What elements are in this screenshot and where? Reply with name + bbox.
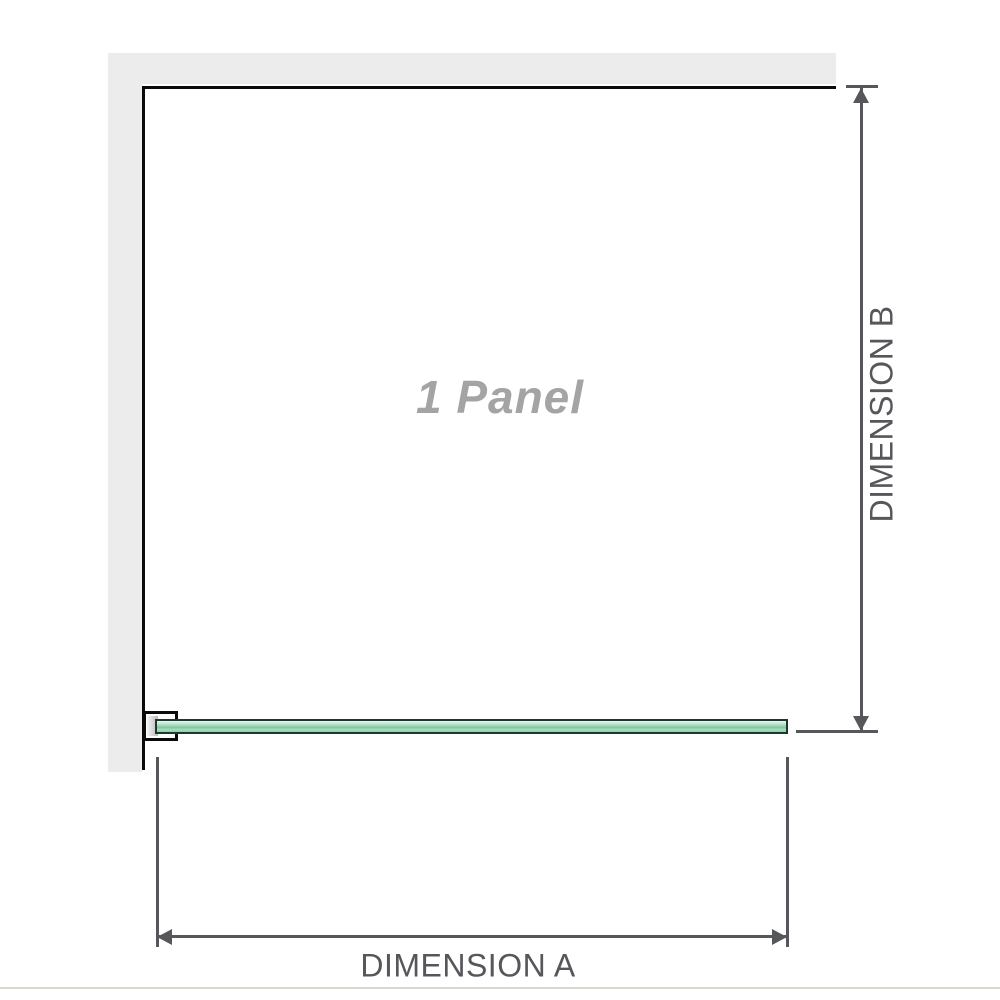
dimension-a-label: DIMENSION A <box>360 948 575 985</box>
dimension-a-arrow-right-icon <box>772 929 787 945</box>
dimension-b-cap-bottom <box>796 730 878 733</box>
diagram-canvas: 1 Panel DIMENSION B DIMENSION A <box>0 0 1000 1000</box>
panel-outline <box>142 86 836 770</box>
glass-panel-bar <box>155 719 788 734</box>
panel-label: 1 Panel <box>416 370 584 424</box>
dimension-a-extension-right <box>786 757 789 947</box>
bottom-divider <box>0 987 1000 989</box>
dimension-a-arrow-left-icon <box>157 929 172 945</box>
dimension-b-label: DIMENSION B <box>864 305 901 522</box>
dimension-b-arrow-down-icon <box>853 716 869 731</box>
dimension-a-line <box>157 935 787 938</box>
wall-left <box>108 53 142 772</box>
dimension-a-extension-left <box>156 757 159 947</box>
dimension-b-arrow-up-icon <box>853 88 869 103</box>
wall-top <box>108 53 836 84</box>
